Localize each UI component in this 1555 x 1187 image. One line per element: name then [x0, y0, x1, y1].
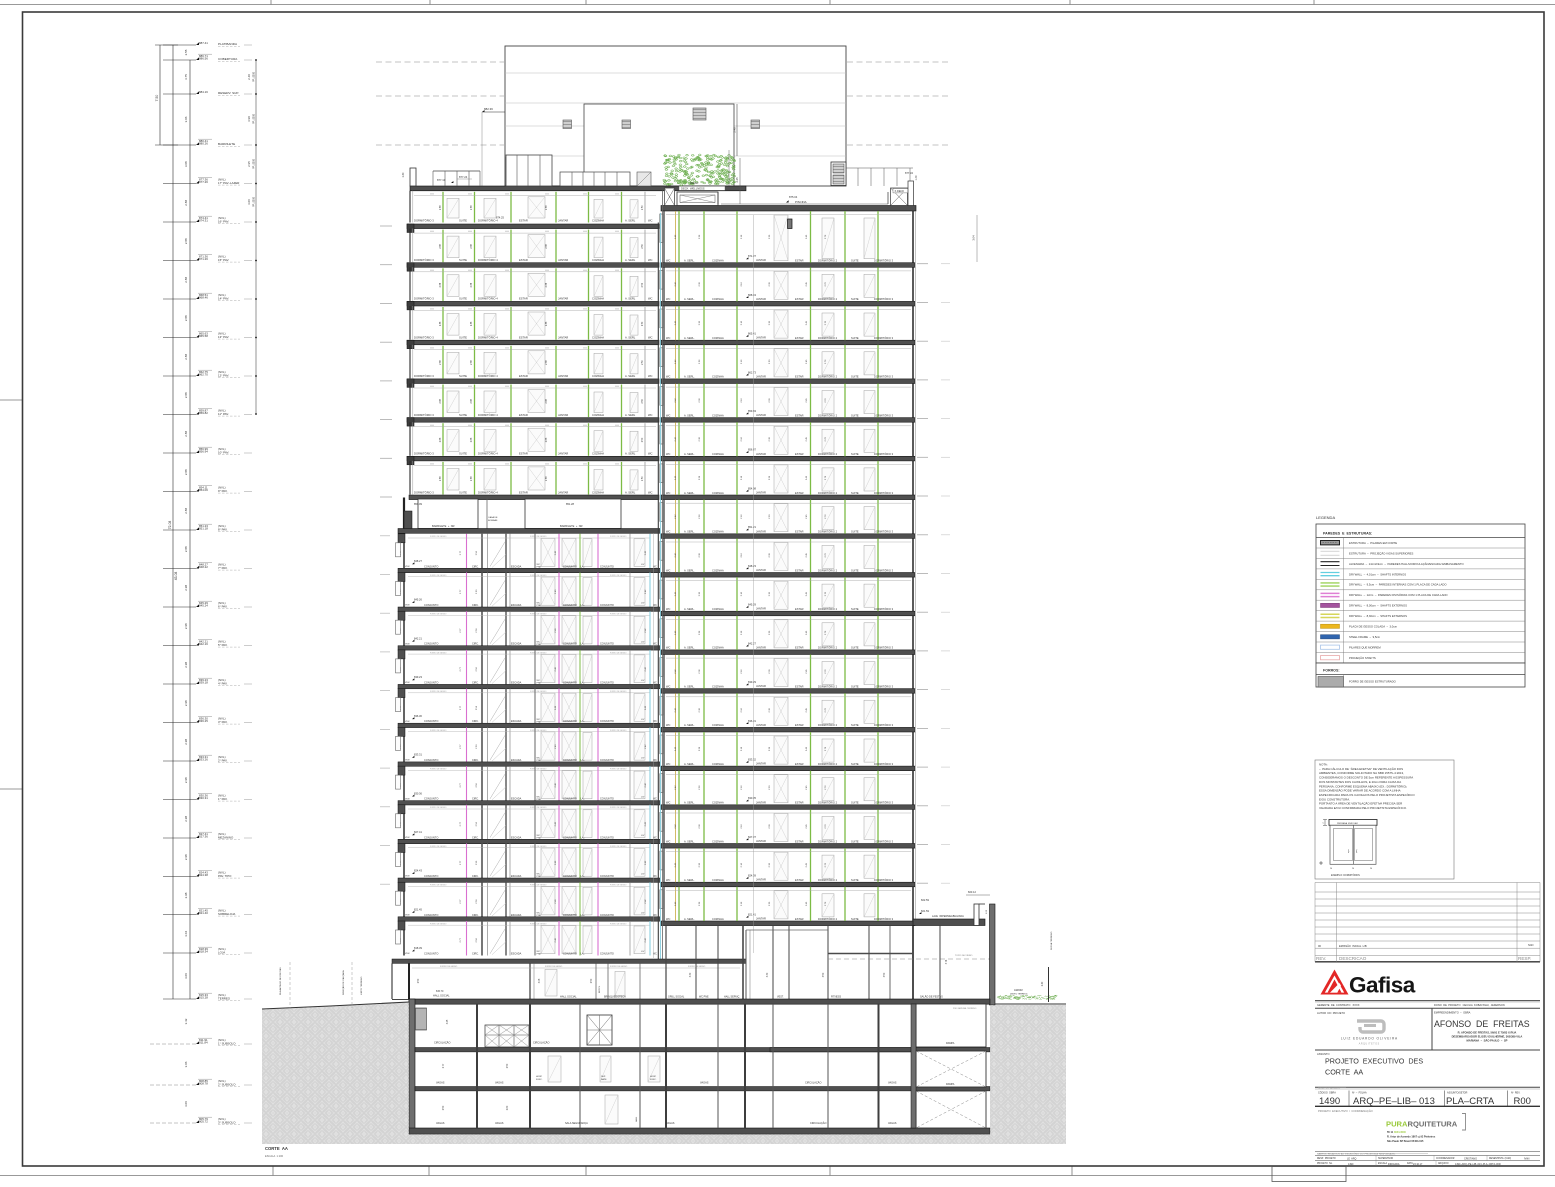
svg-text:VDM: VDM [405, 953, 410, 955]
svg-text:SUITE: SUITE [851, 452, 859, 456]
svg-text:2.88: 2.88 [471, 205, 473, 210]
svg-text:COZINHA: COZINHA [592, 490, 604, 494]
svg-text:JANTAR: JANTAR [756, 839, 766, 843]
svg-text:FORRO DE GESSO: FORRO DE GESSO [610, 769, 627, 771]
svg-text:AMBIENTES, CONFORME SOLICITADO: AMBIENTES, CONFORME SOLICITADO NA NBR 15… [1319, 771, 1404, 775]
svg-text:0000: 0000 [430, 425, 434, 427]
svg-text:SUITE: SUITE [459, 374, 467, 378]
svg-text:VDM: VDM [405, 798, 410, 800]
svg-text:CONJUNTO: CONJUNTO [563, 798, 577, 801]
svg-text:2.88: 2.88 [471, 476, 473, 481]
svg-text:PP_0000: PP_0000 [253, 113, 256, 124]
svg-text:LIV: LIV [641, 951, 645, 953]
svg-text:ESTAR: ESTAR [519, 490, 528, 494]
svg-text:A. SERL.: A. SERL. [684, 646, 695, 650]
svg-text:PISO NATURAL TERRENO: PISO NATURAL TERRENO [953, 1007, 977, 1010]
svg-text:COZINHA: COZINHA [712, 336, 724, 340]
svg-text:2.50: 2.50 [642, 437, 644, 442]
svg-text:839.18: 839.18 [199, 681, 208, 685]
svg-text:FORROS:: FORROS: [1323, 669, 1340, 673]
svg-text:CONJUNTO: CONJUNTO [563, 565, 577, 568]
svg-text:R. AFONSO DE FREITAS, 56/91 E: R. AFONSO DE FREITAS, 56/91 E 75/83 X RU… [1458, 1031, 1517, 1035]
svg-text:DESEMBARGADOR ELISEU GUILHERME: DESEMBARGADOR ELISEU GUILHERME, 365/389 … [1452, 1035, 1523, 1039]
svg-text:CIRC.: CIRC. [472, 643, 479, 646]
svg-text:0000: 0000 [615, 231, 619, 233]
svg-text:FORRO DE GESSO: FORRO DE GESSO [430, 807, 447, 809]
svg-text:2.88: 2.88 [546, 476, 548, 481]
svg-text:842.27: 842.27 [748, 641, 756, 645]
svg-text:SUITE: SUITE [851, 723, 859, 727]
svg-text:VDM: VDM [405, 566, 410, 568]
svg-text:DONO DE PROJETO CECILIA K: DONO DE PROJETO CECILIA KOBAYASHI, JEFER… [1434, 1003, 1505, 1007]
svg-text:CONJUNTO: CONJUNTO [600, 565, 614, 568]
svg-text:0000: 0000 [583, 231, 587, 233]
svg-text:827.36: 827.36 [199, 835, 208, 839]
svg-text:877.26: 877.26 [199, 180, 208, 184]
svg-text:0000: 0000 [505, 425, 509, 427]
svg-text:2.88: 2.88 [471, 437, 473, 442]
svg-text:COZINHA: COZINHA [712, 917, 724, 921]
svg-text:VDM: VDM [405, 643, 410, 645]
svg-text:WC: WC [666, 723, 670, 727]
svg-text:ESTAR: ESTAR [795, 259, 804, 263]
svg-text:2.95: 2.95 [247, 161, 251, 167]
svg-text:854.08: 854.08 [748, 486, 756, 490]
svg-text:0000: 0000 [583, 309, 587, 311]
svg-text:ESTAR: ESTAR [795, 297, 804, 301]
svg-text:JANTAR: JANTAR [756, 491, 766, 495]
svg-text:HALL SOCIAL: HALL SOCIAL [433, 994, 450, 998]
svg-text:FORRO DE GESSO ESTRUTURADO: FORRO DE GESSO ESTRUTURADO [1349, 680, 1396, 684]
svg-text:3.06: 3.06 [184, 1101, 188, 1107]
svg-text:WC: WC [648, 413, 653, 417]
svg-text:STEEL FRAME – 9,5cm: STEEL FRAME – 9,5cm [1349, 635, 1381, 639]
svg-text:0000: 0000 [545, 193, 549, 195]
svg-text:0000: 0000 [505, 193, 509, 195]
svg-text:AUTOR DO PROJETO: AUTOR DO PROJETO [1317, 1011, 1345, 1015]
svg-text:0000: 0000 [583, 386, 587, 388]
svg-text:2.88: 2.88 [471, 360, 473, 365]
svg-text:ESCADA: ESCADA [511, 604, 522, 607]
svg-text:ESTAR: ESTAR [795, 336, 804, 340]
svg-text:CIRC.: CIRC. [472, 798, 479, 801]
svg-text:PERSIANA ENROLAR: PERSIANA ENROLAR [1337, 822, 1358, 825]
svg-text:0000: 0000 [615, 425, 619, 427]
svg-text:A. SERL: A. SERL [625, 490, 636, 494]
svg-text:FORRO DE GESSO: FORRO DE GESSO [610, 614, 627, 616]
svg-text:INDICADA: INDICADA [1388, 1163, 1400, 1166]
svg-text:VAGAS: VAGAS [700, 1082, 709, 1085]
svg-text:3° PAV.: 3° PAV. [218, 720, 228, 724]
svg-text:PP_0000: PP_0000 [253, 71, 256, 82]
svg-text:FORRO DE GESSO: FORRO DE GESSO [430, 730, 447, 732]
svg-text:3.42: 3.42 [184, 1018, 188, 1024]
svg-text:A. SERL.: A. SERL. [684, 530, 695, 534]
svg-text:LIMITE TERRENO: LIMITE TERRENO [361, 976, 363, 995]
svg-text:WC: WC [648, 374, 653, 378]
svg-text:SUITE: SUITE [851, 259, 859, 263]
svg-text:ESTAR: ESTAR [519, 258, 528, 262]
svg-text:JANTAR: JANTAR [756, 568, 766, 572]
svg-text:PROJETO EXECUTIVO DES: PROJETO EXECUTIVO DES [1325, 1057, 1423, 1066]
svg-text:WC: WC [666, 297, 670, 301]
svg-text:865.41: 865.41 [748, 332, 756, 336]
svg-text:LIV: LIV [641, 564, 645, 566]
svg-text:ESTAR: ESTAR [519, 413, 528, 417]
svg-text:CIRC.: CIRC. [472, 836, 479, 839]
svg-text:PLATIBANDA: PLATIBANDA [218, 42, 238, 46]
svg-text:818.34: 818.34 [199, 950, 208, 954]
svg-text:FORRO DE GESSO: FORRO DE GESSO [610, 575, 627, 577]
svg-text:PLA–CRTA: PLA–CRTA [1446, 1096, 1495, 1107]
svg-text:ESTAR: ESTAR [795, 413, 804, 417]
svg-text:2.88: 2.88 [440, 476, 442, 481]
svg-text:A. SERL.: A. SERL. [684, 413, 695, 417]
svg-text:R00: R00 [1514, 1096, 1531, 1107]
svg-text:WC: WC [666, 336, 670, 340]
svg-text:3044.3040: 3044.3040 [1394, 1131, 1406, 1134]
svg-text:CIRC.: CIRC. [472, 953, 479, 956]
svg-text:2.88: 2.88 [440, 437, 442, 442]
svg-text:887.41: 887.41 [199, 41, 208, 45]
svg-text:0000: 0000 [615, 270, 619, 272]
svg-text:ESTAR: ESTAR [795, 801, 804, 805]
svg-text:RAMPA: RAMPA [946, 1042, 955, 1045]
svg-text:WC: WC [666, 646, 670, 650]
svg-text:3.30: 3.30 [690, 972, 692, 977]
svg-text:COZINHA: COZINHA [712, 530, 724, 534]
svg-text:ESTAR: ESTAR [519, 452, 528, 456]
svg-text:CIRC.: CIRC. [472, 681, 479, 684]
svg-text:JANTAR: JANTAR [756, 762, 766, 766]
svg-text:DRYWALL – 9,5cm – PAREDES: DRYWALL – 9,5cm – PAREDES INTERNAS COM 1… [1349, 583, 1447, 587]
svg-text:0000: 0000 [430, 231, 434, 233]
svg-text:SUITE: SUITE [851, 336, 859, 340]
svg-text:2° PAV.: 2° PAV. [218, 758, 228, 762]
svg-text:CONJUNTO: CONJUNTO [563, 681, 577, 684]
svg-text:ESTAR: ESTAR [519, 297, 528, 301]
svg-text:2.88: 2.88 [546, 437, 548, 442]
svg-text:2.88: 2.88 [440, 321, 442, 326]
svg-text:CONJUNTO: CONJUNTO [563, 875, 577, 878]
svg-text:865.58: 865.58 [199, 334, 208, 338]
svg-text:A. SERL.: A. SERL. [684, 839, 695, 843]
svg-text:SUITE: SUITE [459, 490, 467, 494]
svg-text:FORRO DE GESSO: FORRO DE GESSO [440, 966, 458, 968]
svg-text:2.98: 2.98 [184, 585, 188, 591]
svg-text:SUITE: SUITE [851, 607, 859, 611]
svg-text:0000: 0000 [505, 347, 509, 349]
svg-text:842.21: 842.21 [414, 636, 422, 640]
svg-text:0000: 0000 [505, 464, 509, 466]
svg-text:SUITE: SUITE [851, 917, 859, 921]
svg-text:FORRO DE GESSO: FORRO DE GESSO [530, 730, 547, 732]
svg-text:72.08: 72.08 [168, 521, 172, 530]
svg-text:CÓDIGO OBRA: CÓDIGO OBRA [1318, 1092, 1336, 1095]
svg-text:CONJUNTO: CONJUNTO [563, 953, 577, 956]
svg-text:FUNC.: FUNC. [536, 1079, 543, 1081]
svg-text:859.83: 859.83 [748, 409, 756, 413]
svg-text:SUITE: SUITE [459, 413, 467, 417]
svg-text:SUITE: SUITE [459, 218, 467, 222]
svg-text:CONJUNTO: CONJUNTO [600, 953, 614, 956]
svg-text:SUITE: SUITE [851, 530, 859, 534]
svg-text:BARRILETE: BARRILETE [218, 142, 235, 146]
svg-text:6° PAV.: 6° PAV. [218, 604, 228, 608]
svg-text:COZINHA: COZINHA [712, 762, 724, 766]
svg-text:WC: WC [666, 607, 670, 611]
svg-text:WC: WC [666, 259, 670, 263]
svg-text:IVAN: IVAN [1528, 944, 1534, 947]
svg-text:FITNESS: FITNESS [831, 996, 842, 999]
svg-text:A. SERL.: A. SERL. [684, 452, 695, 456]
svg-text:20: 20 [1370, 868, 1372, 870]
svg-text:4° PAV.: 4° PAV. [218, 681, 228, 685]
svg-text:VDM: VDM [405, 605, 410, 607]
svg-text:CONJUNTO: CONJUNTO [424, 758, 438, 762]
svg-text:VDM: VDM [405, 760, 410, 762]
svg-text:WC: WC [666, 491, 670, 495]
svg-text:2.98: 2.98 [184, 816, 188, 822]
svg-text:FORRO DE GESSO: FORRO DE GESSO [610, 691, 627, 693]
svg-text:LIV: LIV [641, 758, 645, 760]
svg-text:WC: WC [666, 413, 670, 417]
svg-text:0000: 0000 [615, 347, 619, 349]
svg-text:FORRO DE GESSO: FORRO DE GESSO [610, 536, 627, 538]
svg-text:COZINHA: COZINHA [712, 452, 724, 456]
svg-text:ESSA DIMENSÃO PODE VARIAR DE A: ESSA DIMENSÃO PODE VARIAR DE ACORDO COM … [1319, 788, 1401, 793]
svg-text:ESCADA: ESCADA [511, 875, 522, 878]
svg-text:SUITE: SUITE [459, 336, 467, 340]
svg-text:10° PAV.: 10° PAV. [218, 450, 229, 454]
svg-text:1.40: 1.40 [915, 175, 918, 180]
svg-text:833.31: 833.31 [414, 753, 422, 757]
svg-text:LIV: LIV [641, 603, 645, 605]
svg-text:LEGENDA: LEGENDA [1316, 515, 1335, 520]
svg-text:2.98: 2.98 [184, 739, 188, 745]
svg-text:CIRC.: CIRC. [472, 720, 479, 723]
svg-text:WC PNE: WC PNE [699, 996, 709, 999]
svg-text:CIRCULAÇÃO: CIRCULAÇÃO [810, 1122, 826, 1125]
svg-text:SUITE: SUITE [851, 839, 859, 843]
svg-text:1° PAV.: 1° PAV. [218, 797, 228, 801]
svg-text:821.59: 821.59 [921, 909, 929, 913]
svg-text:2.88: 2.88 [184, 315, 188, 321]
svg-text:3.04: 3.04 [972, 235, 976, 241]
svg-text:A. SERL.: A. SERL. [684, 801, 695, 805]
svg-text:LIV: LIV [641, 680, 645, 682]
svg-text:2.77: 2.77 [443, 1063, 445, 1068]
svg-text:VAGAS: VAGAS [888, 1122, 897, 1125]
svg-text:COZINHA: COZINHA [712, 607, 724, 611]
svg-text:X.DECK: X.DECK [895, 189, 905, 193]
svg-text:0000: 0000 [545, 231, 549, 233]
svg-text:2.88: 2.88 [184, 392, 188, 398]
svg-text:JANTAR: JANTAR [558, 490, 568, 494]
svg-text:2° SUBSOLO: 2° SUBSOLO [218, 1082, 236, 1086]
svg-text:16° PAV.: 16° PAV. [218, 219, 229, 223]
svg-text:CAMPOS RELATIVOS AO ESCRITÓ: CAMPOS RELATIVOS AO ESCRITÓRIO DO PROJET… [1317, 1152, 1396, 1155]
svg-text:2.98: 2.98 [184, 892, 188, 898]
svg-text:ESCADA: ESCADA [511, 953, 522, 956]
svg-text:EXEMPLO: DORMITÓRIOS: EXEMPLO: DORMITÓRIOS [1331, 874, 1360, 877]
svg-text:0000: 0000 [545, 347, 549, 349]
svg-text:884.16: 884.16 [199, 90, 208, 94]
svg-text:COZINHA: COZINHA [712, 646, 724, 650]
svg-text:COZINHA: COZINHA [712, 413, 724, 417]
svg-text:CONJUNTO: CONJUNTO [424, 952, 438, 956]
svg-text:0000: 0000 [505, 386, 509, 388]
svg-text:AFONSO DE FREITAS: AFONSO DE FREITAS [1434, 1019, 1530, 1029]
svg-text:WC: WC [648, 297, 653, 301]
svg-text:871.37: 871.37 [748, 254, 756, 258]
svg-text:2.50: 2.50 [642, 205, 644, 210]
svg-text:830.35: 830.35 [748, 796, 756, 800]
svg-text:2.48: 2.48 [733, 127, 737, 133]
svg-text:0000: 0000 [505, 231, 509, 233]
svg-text:ESCALA 1:100: ESCALA 1:100 [265, 1154, 284, 1158]
svg-text:A. SERL: A. SERL [625, 374, 636, 378]
svg-text:CIRC.: CIRC. [472, 875, 479, 878]
svg-text:WC: WC [666, 878, 670, 882]
svg-text:VAGAS: VAGAS [436, 1122, 445, 1125]
svg-text:830.36: 830.36 [414, 791, 422, 795]
svg-text:A R Q U I T E T O S: A R Q U I T E T O S [1359, 1043, 1380, 1046]
svg-text:WC: WC [648, 258, 653, 262]
svg-text:VAGAS: VAGAS [495, 1122, 504, 1125]
svg-text:SALA SEGURANÇA: SALA SEGURANÇA [565, 1122, 588, 1125]
svg-text:0000: 0000 [615, 193, 619, 195]
svg-text:RAMPA: RAMPA [946, 1083, 955, 1086]
svg-text:ESTAR: ESTAR [795, 762, 804, 766]
svg-text:PP_0000: PP_0000 [253, 158, 256, 169]
svg-text:SUITE: SUITE [851, 762, 859, 766]
svg-text:3° SUBSOLO: 3° SUBSOLO [218, 1120, 236, 1124]
svg-text:MEZANINO: MEZANINO [218, 835, 234, 839]
svg-text:3.90: 3.90 [247, 116, 251, 122]
svg-text:854.06: 854.06 [199, 488, 208, 492]
svg-text:BICICL.: BICICL. [599, 985, 601, 993]
svg-text:SUITE: SUITE [851, 801, 859, 805]
svg-text:CONJUNTO: CONJUNTO [563, 720, 577, 723]
svg-text:ESTAR: ESTAR [795, 839, 804, 843]
svg-text:COZINHA: COZINHA [712, 839, 724, 843]
svg-text:851.21: 851.21 [748, 525, 756, 529]
svg-text:A. SERL: A. SERL [625, 258, 636, 262]
svg-text:2.88: 2.88 [546, 282, 548, 287]
svg-text:CONJUNTO: CONJUNTO [424, 719, 438, 723]
svg-text:FORRO DE GESSO: FORRO DE GESSO [610, 730, 627, 732]
svg-text:NOTA:: NOTA: [1319, 763, 1328, 767]
svg-text:2.98: 2.98 [184, 777, 188, 783]
svg-text:WC: WC [666, 839, 670, 843]
svg-text:CONJUNTO: CONJUNTO [424, 680, 438, 684]
svg-text:2.88: 2.88 [440, 243, 442, 248]
svg-text:3.25: 3.25 [447, 1019, 449, 1024]
svg-text:839.29: 839.29 [748, 680, 756, 684]
svg-text:2.88: 2.88 [471, 282, 473, 287]
svg-text:(NÍVEL TERREO): (NÍVEL TERREO) [1010, 993, 1028, 996]
svg-text:822.59: 822.59 [921, 898, 929, 902]
svg-text:A. SERL.: A. SERL. [684, 684, 695, 688]
svg-text:2.88: 2.88 [184, 277, 188, 283]
svg-text:877.10: 877.10 [437, 178, 446, 182]
svg-text:BARRILETE + NR: BARRILETE + NR [560, 524, 583, 528]
svg-text:ASSUNTO/SETOR: ASSUNTO/SETOR [1447, 1092, 1468, 1095]
svg-text:CIRC.: CIRC. [472, 914, 479, 917]
svg-text:A. SERL: A. SERL [625, 218, 636, 222]
svg-text:815.28: 815.28 [199, 996, 208, 1000]
svg-text:LOJA: LOJA [218, 950, 225, 954]
svg-text:3.50: 3.50 [823, 972, 825, 977]
svg-text:WC: WC [666, 568, 670, 572]
svg-text:848.23: 848.23 [748, 564, 756, 568]
svg-text:811.84: 811.84 [199, 1041, 208, 1045]
svg-text:856.94: 856.94 [199, 450, 208, 454]
svg-text:RUA AFONSO DE FREITAS: RUA AFONSO DE FREITAS [279, 967, 282, 995]
svg-text:GRILL SOCIAL: GRILL SOCIAL [668, 996, 685, 999]
svg-text:2.88: 2.88 [440, 360, 442, 365]
svg-text:0000: 0000 [430, 309, 434, 311]
svg-text:LIV: LIV [641, 835, 645, 837]
svg-text:818.39: 818.39 [414, 946, 422, 950]
svg-text:14° PAV.: 14° PAV. [218, 296, 229, 300]
svg-text:824.38: 824.38 [199, 873, 208, 877]
svg-text:0000: 0000 [505, 270, 509, 272]
svg-text:FORRO DE GESSO: FORRO DE GESSO [430, 652, 447, 654]
svg-text:JANTAR: JANTAR [756, 917, 766, 921]
svg-text:FORRO DE GESSO: FORRO DE GESSO [430, 691, 447, 693]
svg-text:FORRO DE GESSO: FORRO DE GESSO [530, 691, 547, 693]
svg-text:A. SERL.: A. SERL. [684, 568, 695, 572]
svg-text:A. SERL.: A. SERL. [684, 607, 695, 611]
svg-text:851.18: 851.18 [199, 527, 208, 531]
svg-text:13° PAV.: 13° PAV. [218, 335, 229, 339]
svg-text:FORRO DE GESSO: FORRO DE GESSO [530, 536, 547, 538]
svg-text:A. SERL.: A. SERL. [684, 375, 695, 379]
svg-text:VEST.: VEST. [777, 996, 784, 999]
svg-text:0000: 0000 [545, 270, 549, 272]
svg-text:CIRC.: CIRC. [472, 604, 479, 607]
svg-text:ESTAR: ESTAR [795, 878, 804, 882]
svg-text:ESTAR: ESTAR [795, 917, 804, 921]
svg-text:CONJUNTO: CONJUNTO [424, 835, 438, 839]
svg-text:SUITE: SUITE [459, 297, 467, 301]
svg-text:JANTAR: JANTAR [756, 529, 766, 533]
svg-text:2.88: 2.88 [546, 398, 548, 403]
svg-text:DIVISA TERRENO: DIVISA TERRENO [1050, 931, 1053, 950]
svg-text:805.72: 805.72 [199, 1120, 208, 1124]
svg-text:CONJUNTO: CONJUNTO [424, 874, 438, 878]
svg-text:2.25: 2.25 [735, 177, 739, 183]
svg-text:CONJUNTO: CONJUNTO [563, 759, 577, 762]
svg-text:FUNC.: FUNC. [650, 1079, 657, 1081]
svg-text:ARQUIVO: ARQUIVO [1438, 1162, 1449, 1165]
svg-text:821.41: 821.41 [748, 912, 756, 916]
svg-text:DIREÇÃO DE CALÇADA: DIREÇÃO DE CALÇADA [342, 970, 345, 995]
svg-text:12° PAV.: 12° PAV. [218, 373, 229, 377]
svg-text:HALL: HALL [635, 1116, 638, 1122]
svg-text:CONJUNTO: CONJUNTO [600, 798, 614, 801]
svg-text:JANTAR: JANTAR [558, 258, 568, 262]
svg-text:0000: 0000 [468, 386, 472, 388]
svg-text:CONJUNTO: CONJUNTO [600, 759, 614, 762]
svg-text:ESTAR: ESTAR [795, 491, 804, 495]
svg-text:836.31: 836.31 [748, 719, 756, 723]
svg-text:FORRO DE GESSO: FORRO DE GESSO [430, 885, 447, 887]
svg-text:VDM: VDM [405, 721, 410, 723]
svg-text:ARQ–PE–LIB– 013: ARQ–PE–LIB– 013 [1353, 1096, 1435, 1107]
